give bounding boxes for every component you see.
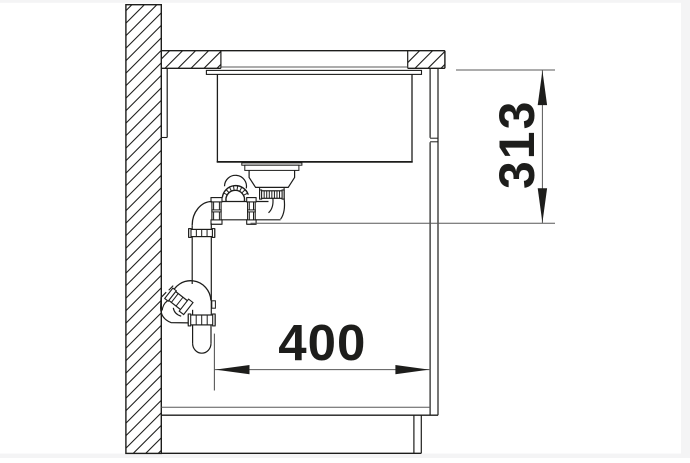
svg-text:400: 400 xyxy=(278,314,366,371)
svg-text:313: 313 xyxy=(489,100,545,189)
